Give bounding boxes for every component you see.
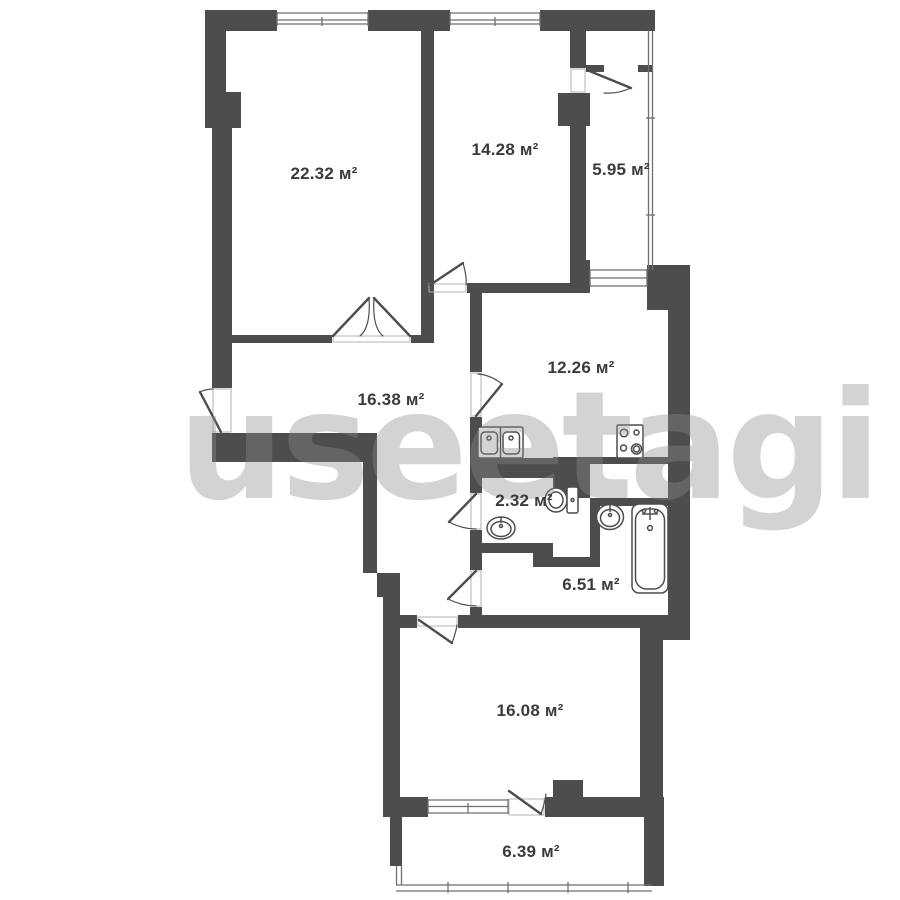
door-bathroom: [448, 571, 476, 606]
floorplan-canvas: useetagi 22.32 м² 14.28 м² 5.95 м² 16.38…: [0, 0, 900, 900]
room-label-balcony: 6.39 м²: [502, 842, 559, 862]
room-label-hallway: 16.38 м²: [357, 390, 424, 410]
room-label-wc: 2.32 м²: [495, 491, 552, 511]
door-bedroom: [430, 263, 466, 285]
window-kitchen-loggia: [590, 269, 647, 287]
window-bedroom: [450, 12, 540, 26]
window-room-2: [428, 799, 508, 814]
kitchen-sink-icon: [478, 427, 523, 458]
door-balcony: [509, 791, 546, 814]
window-living-room: [277, 12, 368, 26]
bathtub-icon: [632, 504, 668, 593]
door-room-2: [419, 620, 457, 643]
room-label-bedroom: 14.28 м²: [471, 140, 538, 160]
floorplan-drawing: [0, 0, 900, 900]
glazing-balcony: [396, 866, 652, 893]
door-kitchen: [476, 374, 502, 416]
door-loggia: [587, 70, 631, 93]
wc-basin-icon: [487, 517, 515, 539]
stove-icon: [617, 425, 643, 458]
door-entry: [200, 389, 221, 432]
bathroom-sink-icon: [597, 505, 624, 530]
room-label-bathroom: 6.51 м²: [562, 575, 619, 595]
room-label-living-room: 22.32 м²: [290, 164, 357, 184]
room-label-room-2: 16.08 м²: [496, 701, 563, 721]
room-label-loggia: 5.95 м²: [592, 160, 649, 180]
room-label-kitchen: 12.26 м²: [547, 358, 614, 378]
door-wc: [449, 494, 476, 529]
door-living-room-double: [333, 298, 410, 336]
